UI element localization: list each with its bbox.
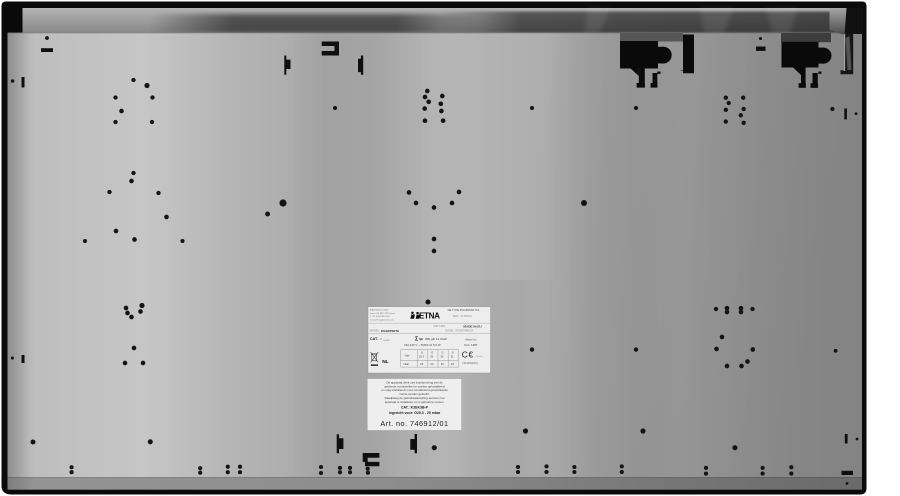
svg-text:: II: : II [378, 337, 381, 341]
svg-text:SER.: 23 500C1: SER.: 23 500C1 [453, 314, 473, 318]
svg-text:Made by: Made by [465, 337, 477, 341]
svg-text:2L3B/P: 2L3B/P [383, 340, 390, 342]
svg-text:service@atagbenelux.com: service@atagbenelux.com [370, 319, 395, 322]
svg-text:NL: NL [382, 359, 388, 365]
svg-text:€: € [469, 350, 474, 359]
svg-text:C: C [462, 350, 468, 359]
svg-text:apparaat te installeren en in: apparaat te installeren en in gebruik te… [385, 400, 445, 404]
svg-text:mbar: mbar [403, 362, 409, 366]
svg-text:T. +31 (0)26 882 1100: T. +31 (0)26 882 1100 [370, 316, 391, 318]
svg-text:F10426: F10426 [476, 356, 484, 358]
svg-text:N.C. 1157: N.C. 1157 [464, 343, 478, 347]
svg-text:Σ: Σ [415, 337, 418, 343]
svg-text:ETNA: ETNA [419, 312, 440, 321]
svg-text:G: G [452, 351, 454, 355]
svg-text:Gas: Gas [405, 354, 410, 358]
svg-text:800 g/h 11.0 kW: 800 g/h 11.0 kW [425, 337, 447, 341]
svg-text:G: G [421, 351, 423, 355]
svg-text:G: G [442, 351, 444, 355]
svg-text:G: G [431, 351, 433, 355]
svg-text:Impact 83, 6921 RZ Duiven: Impact 83, 6921 RZ Duiven [370, 312, 396, 315]
svg-text:220-240 V ~ 50/60 Hz 6.6 W: 220-240 V ~ 50/60 Hz 6.6 W [404, 343, 441, 347]
svg-text:MODEL:: MODEL: [370, 329, 381, 333]
svg-text:MODEL: VKGK67N4BC04: MODEL: VKGK67N4BC04 [445, 330, 474, 333]
svg-text:KGG670ETA: KGG670ETA [381, 329, 400, 333]
svg-text:CAT.: CAT. [370, 337, 378, 341]
svg-text:CAT I 601: CAT I 601 [434, 324, 446, 328]
svg-text:ingericht voor: G25.3 - 25 mb: ingericht voor: G25.3 - 25 mbar [389, 411, 441, 415]
svg-text:CAT.: K2EK3B-P: CAT.: K2EK3B-P [401, 405, 429, 409]
svg-text:25.3: 25.3 [419, 355, 425, 359]
svg-text:DE TYPE PGG6NMW 702: DE TYPE PGG6NMW 702 [448, 308, 480, 312]
svg-text:Art. no. 746912/01: Art. no. 746912/01 [380, 419, 448, 428]
svg-text:(313DN943): (313DN943) [462, 361, 477, 365]
svg-text:MADE IN EU: MADE IN EU [463, 324, 482, 328]
svg-text:Qn: Qn [419, 337, 423, 341]
svg-text:ATAG Nederland BV: ATAG Nederland BV [370, 308, 389, 311]
